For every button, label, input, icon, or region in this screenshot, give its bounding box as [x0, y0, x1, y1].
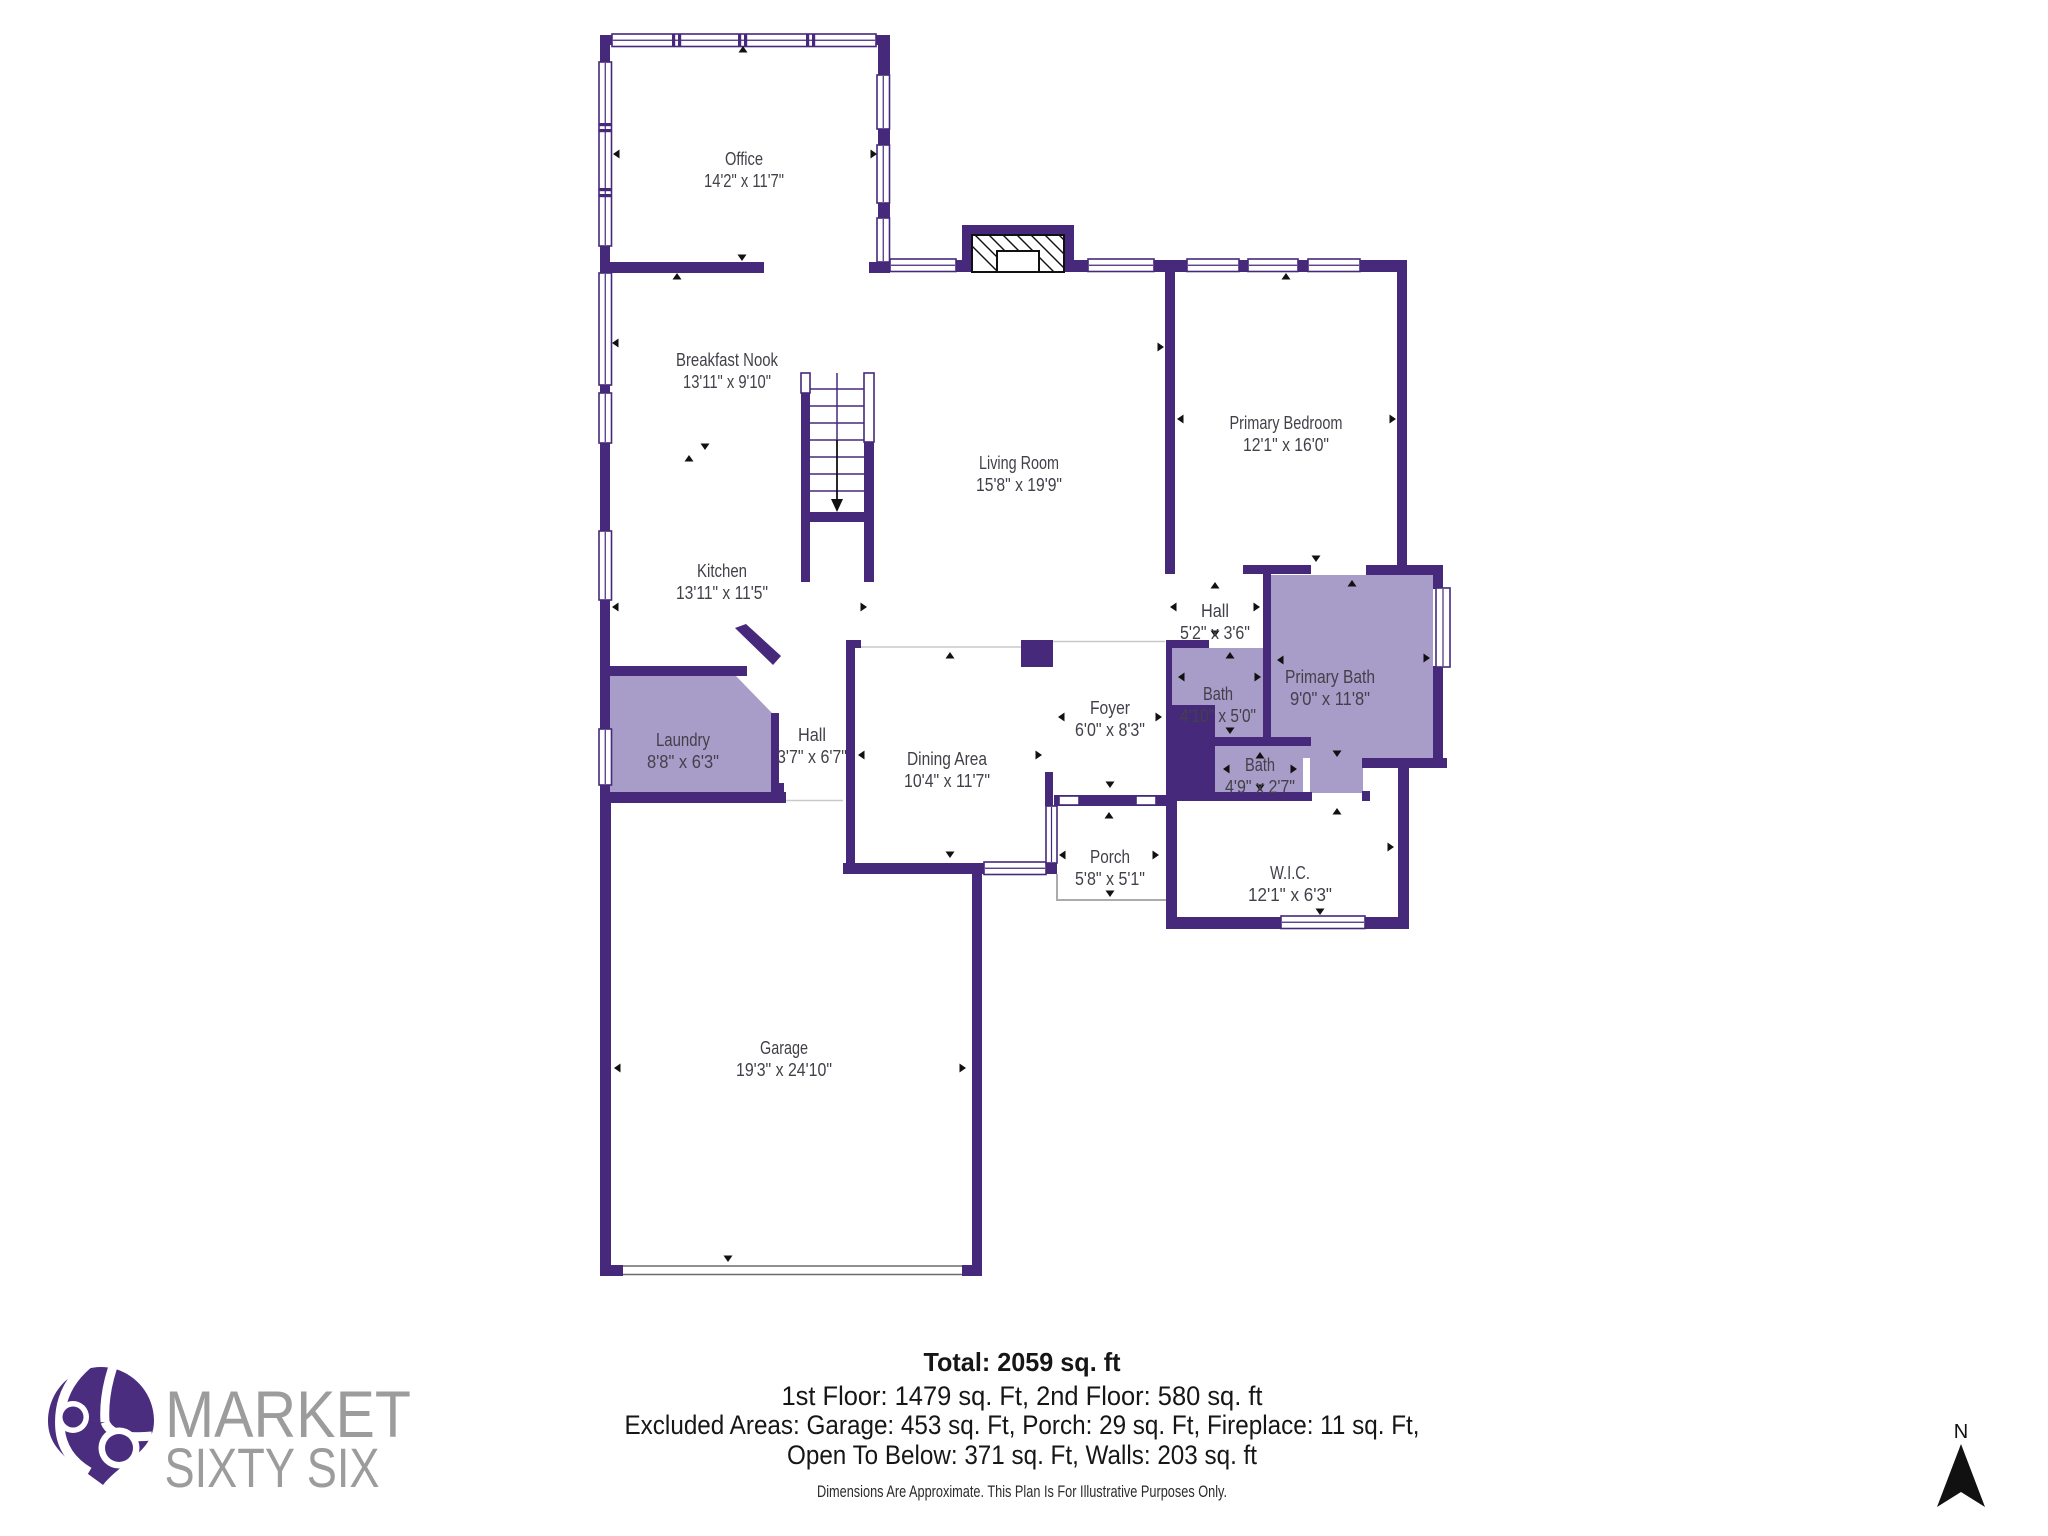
svg-text:15'8" x 19'9": 15'8" x 19'9" [976, 474, 1062, 495]
svg-text:Bath: Bath [1245, 754, 1275, 775]
svg-text:Total: 2059 sq. ft: Total: 2059 sq. ft [924, 1347, 1121, 1377]
svg-text:SIXTY SIX: SIXTY SIX [165, 1436, 380, 1499]
svg-text:Primary Bath: Primary Bath [1285, 666, 1375, 687]
svg-text:N: N [1954, 1421, 1968, 1443]
svg-text:3'7" x 6'7": 3'7" x 6'7" [777, 746, 847, 767]
svg-text:Open To Below: 371 sq. Ft, Wal: Open To Below: 371 sq. Ft, Walls: 203 sq… [787, 1440, 1257, 1470]
svg-text:Dining Area: Dining Area [907, 748, 988, 769]
svg-text:Bath: Bath [1203, 683, 1233, 704]
svg-text:Office: Office [725, 148, 763, 169]
svg-text:Dimensions Are Approximate. Th: Dimensions Are Approximate. This Plan Is… [817, 1482, 1227, 1501]
svg-text:W.I.C.: W.I.C. [1270, 862, 1310, 883]
svg-text:5'2" x 3'6": 5'2" x 3'6" [1180, 622, 1250, 643]
svg-text:19'3" x 24'10": 19'3" x 24'10" [736, 1059, 832, 1080]
svg-text:Living Room: Living Room [979, 452, 1059, 473]
svg-text:Excluded Areas: Garage: 453 sq: Excluded Areas: Garage: 453 sq. Ft, Porc… [625, 1410, 1420, 1440]
svg-text:Foyer: Foyer [1090, 697, 1130, 718]
svg-text:Garage: Garage [760, 1037, 808, 1058]
svg-text:10'4" x 11'7": 10'4" x 11'7" [904, 770, 990, 791]
svg-text:Breakfast Nook: Breakfast Nook [676, 349, 779, 370]
svg-text:12'1" x 16'0": 12'1" x 16'0" [1243, 434, 1329, 455]
svg-text:5'8" x 5'1": 5'8" x 5'1" [1075, 868, 1145, 889]
svg-text:Porch: Porch [1090, 846, 1130, 867]
svg-text:Laundry: Laundry [656, 729, 711, 750]
svg-text:4'10" x 5'0": 4'10" x 5'0" [1180, 705, 1256, 726]
svg-text:6'0" x 8'3": 6'0" x 8'3" [1075, 719, 1145, 740]
svg-text:1st Floor: 1479 sq. Ft, 2nd Fl: 1st Floor: 1479 sq. Ft, 2nd Floor: 580 s… [782, 1381, 1263, 1411]
svg-text:9'0" x 11'8": 9'0" x 11'8" [1290, 688, 1370, 709]
svg-text:Hall: Hall [1201, 600, 1229, 621]
svg-text:12'1" x 6'3": 12'1" x 6'3" [1248, 884, 1332, 905]
svg-text:4'9" x 2'7": 4'9" x 2'7" [1225, 776, 1295, 797]
svg-text:Primary Bedroom: Primary Bedroom [1230, 412, 1343, 433]
svg-text:Hall: Hall [798, 724, 826, 745]
svg-text:14'2" x 11'7": 14'2" x 11'7" [704, 170, 784, 191]
svg-text:13'11" x 11'5": 13'11" x 11'5" [676, 582, 768, 603]
svg-text:13'11" x 9'10": 13'11" x 9'10" [683, 371, 771, 392]
svg-text:Kitchen: Kitchen [697, 560, 747, 581]
svg-text:8'8" x 6'3": 8'8" x 6'3" [647, 751, 719, 772]
